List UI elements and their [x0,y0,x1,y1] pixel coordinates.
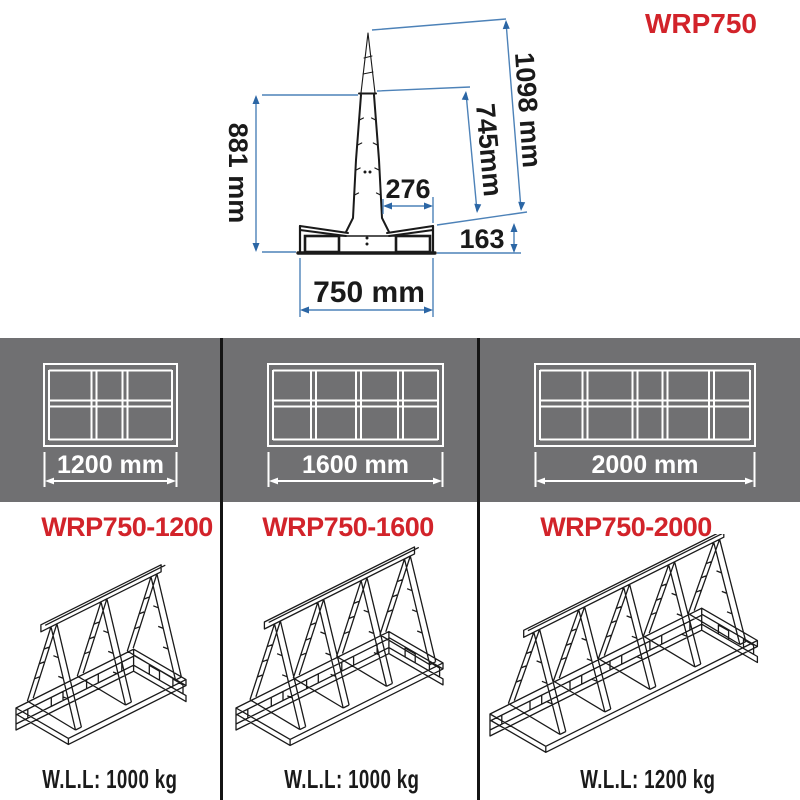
base-top-right [387,226,433,236]
base-top-left [300,226,348,236]
wll-text-1600: W.L.L: 1000 kg [284,764,419,795]
length-label-1200: 1200 mm [57,451,164,479]
length-label-1600: 1600 mm [302,451,409,479]
dim-frame-height: 881 mm [223,123,253,224]
post-left-edge [346,95,361,232]
wll-text-1200: W.L.L: 1000 kg [42,764,177,795]
fork-pocket-left [305,236,339,252]
dim-top-offset: 276 [385,174,430,204]
dim-post-height: 745mm [470,102,508,197]
dim-base-width: 750 mm [313,276,425,309]
isometric-drawing-1600 [226,540,476,766]
isometric-drawing-1200 [4,550,214,758]
isometric-drawing-2000 [480,534,798,772]
model-label-1600: WRP750-1600 [248,512,448,543]
cross-section-drawing: 881 mm 1098 mm 745mm 276 163 750 mm [0,0,800,338]
post-tip [361,33,375,93]
top-view-drawings: 1200 mm 1600 mm 2000 mm [0,338,800,502]
wll-label-2000: W.L.L: 1200 kg [548,764,748,795]
wll-label-1600: W.L.L: 1000 kg [252,764,452,795]
post-right-edge [374,95,389,232]
column-divider-1 [220,338,223,800]
fork-pocket-right [396,236,430,252]
dim-overall-height: 1098 mm [509,51,547,168]
length-label-2000: 2000 mm [591,451,698,479]
dim-base-height: 163 [459,224,504,254]
post-bolt-dots [364,171,372,246]
model-label-1200: WRP750-1200 [27,512,227,543]
spec-sheet: WRP750 [0,0,800,800]
wll-text-2000: W.L.L: 1200 kg [580,764,715,795]
wll-label-1200: W.L.L: 1000 kg [10,764,210,795]
